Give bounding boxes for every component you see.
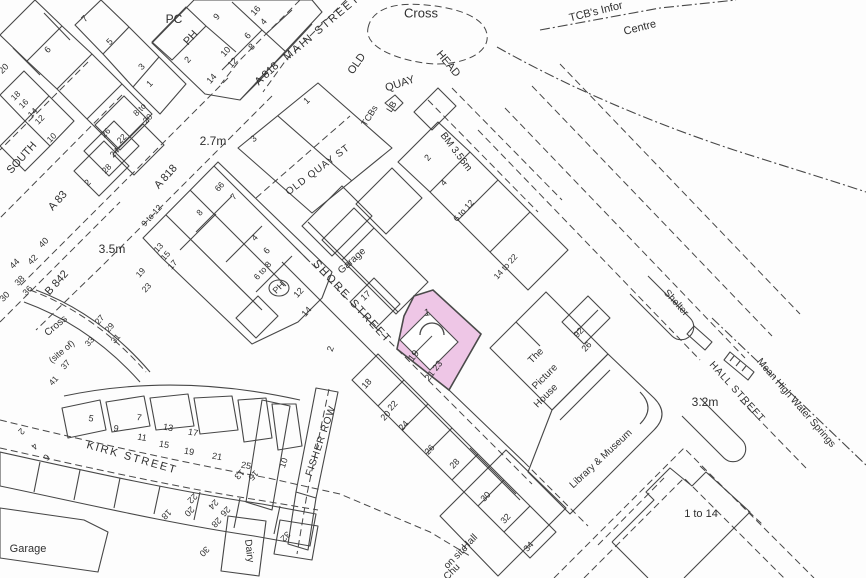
map-label: 21	[211, 451, 223, 463]
map-label: 3.2m	[692, 395, 719, 409]
map-label: 19	[183, 446, 195, 458]
map-label: 13	[162, 422, 174, 434]
map-background	[0, 0, 866, 578]
map-label: Garage	[10, 543, 47, 555]
location-plan-map: CrossMAIN STREETOLDQUAYHEADTCB's InforCe…	[0, 0, 866, 578]
map-label: 3.5m	[99, 242, 126, 256]
map-label: 15	[158, 439, 170, 451]
map-label: PC	[166, 12, 183, 26]
map-label: 11	[137, 432, 148, 443]
map-label: 17	[187, 427, 199, 439]
map-label: Cross	[404, 5, 438, 20]
map-label: 2.7m	[200, 134, 227, 148]
map-label: 1 to 14	[684, 508, 718, 520]
map-canvas: CrossMAIN STREETOLDQUAYHEADTCB's InforCe…	[0, 0, 866, 578]
